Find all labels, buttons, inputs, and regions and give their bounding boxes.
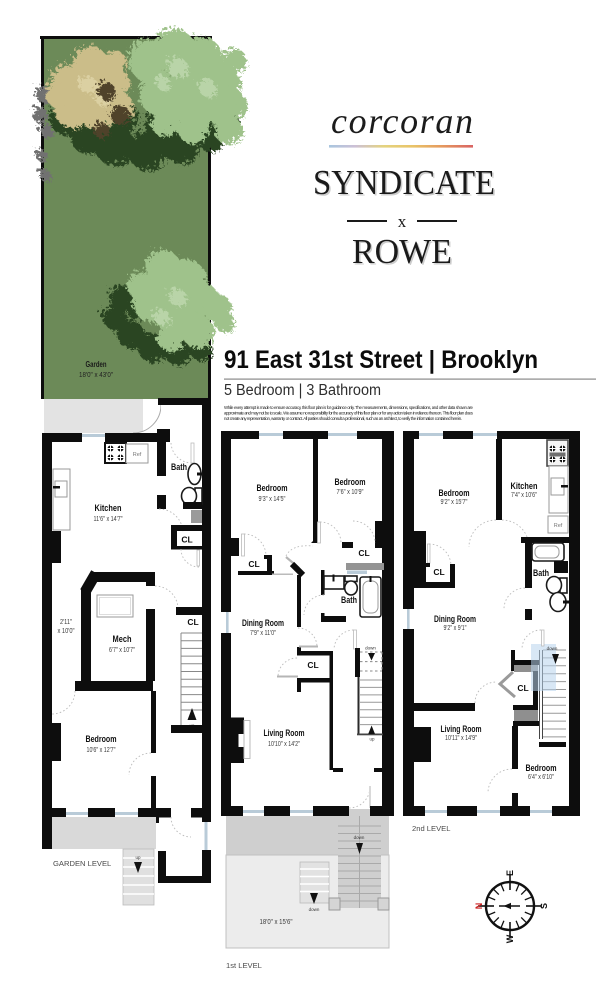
- svg-text:up: up: [135, 855, 141, 860]
- svg-text:6'4" x 6'10": 6'4" x 6'10": [528, 772, 554, 781]
- svg-text:5 Bedroom | 3 Bathroom: 5 Bedroom | 3 Bathroom: [224, 382, 381, 399]
- svg-text:18'0" x 15'6": 18'0" x 15'6": [260, 917, 293, 926]
- svg-text:SYNDICATE: SYNDICATE: [313, 163, 495, 202]
- svg-text:GARDEN LEVEL: GARDEN LEVEL: [53, 859, 111, 868]
- svg-text:E: E: [505, 870, 515, 876]
- svg-text:ROWE: ROWE: [352, 232, 452, 271]
- svg-text:2nd LEVEL: 2nd LEVEL: [412, 824, 450, 833]
- svg-text:W: W: [505, 934, 515, 943]
- svg-text:x: x: [398, 212, 407, 231]
- svg-text:11'6" x 14'7": 11'6" x 14'7": [94, 514, 123, 523]
- svg-text:7'6" x 10'9": 7'6" x 10'9": [337, 487, 364, 496]
- svg-text:91 East 31st Street | Brooklyn: 91 East 31st Street | Brooklyn: [224, 346, 538, 374]
- svg-text:Bedroom: Bedroom: [335, 477, 366, 487]
- svg-text:Bedroom: Bedroom: [86, 734, 117, 744]
- svg-text:CL: CL: [248, 559, 259, 569]
- svg-text:Mech: Mech: [113, 634, 132, 644]
- svg-text:CL: CL: [307, 660, 318, 670]
- svg-text:not create any representation,: not create any representation, warranty …: [224, 416, 462, 421]
- svg-text:CL: CL: [433, 567, 444, 577]
- svg-text:down: down: [547, 646, 558, 651]
- svg-text:x 10'0": x 10'0": [58, 626, 75, 635]
- svg-text:up: up: [369, 737, 375, 742]
- svg-text:Ref: Ref: [133, 452, 142, 458]
- svg-text:9'2" x 9'1": 9'2" x 9'1": [444, 623, 467, 632]
- svg-text:Bath: Bath: [341, 595, 357, 605]
- svg-text:9'3" x 14'5": 9'3" x 14'5": [259, 494, 286, 503]
- svg-text:corcoran: corcoran: [331, 101, 473, 141]
- svg-text:S: S: [539, 903, 549, 909]
- svg-text:While every attempt is made to: While every attempt is made to ensure ac…: [224, 405, 474, 410]
- svg-text:9'2" x 15'7": 9'2" x 15'7": [441, 497, 468, 506]
- svg-text:Living Room: Living Room: [264, 728, 305, 738]
- svg-text:approximate and may not be to: approximate and may not be to scale. We …: [224, 411, 474, 416]
- svg-text:Bath: Bath: [171, 462, 187, 472]
- svg-text:down: down: [365, 646, 376, 651]
- svg-text:Ref: Ref: [554, 523, 563, 529]
- svg-text:10'10" x 14'2": 10'10" x 14'2": [268, 739, 300, 748]
- svg-text:CL: CL: [181, 535, 192, 545]
- svg-text:CL: CL: [187, 617, 198, 627]
- svg-text:Bath: Bath: [533, 568, 549, 578]
- svg-text:10'6" x 12'7": 10'6" x 12'7": [87, 745, 116, 754]
- svg-text:down: down: [354, 835, 365, 840]
- svg-text:Dining Room: Dining Room: [242, 618, 284, 628]
- svg-text:6'7" x 10'7": 6'7" x 10'7": [109, 645, 135, 654]
- svg-text:7'4" x 10'6": 7'4" x 10'6": [511, 490, 537, 499]
- svg-text:CL: CL: [358, 548, 369, 558]
- svg-text:down: down: [309, 907, 320, 912]
- svg-text:Bedroom: Bedroom: [257, 483, 288, 493]
- svg-text:10'11" x 14'9": 10'11" x 14'9": [445, 733, 477, 742]
- svg-text:2'11": 2'11": [60, 617, 72, 626]
- svg-text:18'0" x 43'0": 18'0" x 43'0": [79, 372, 113, 379]
- svg-text:7'9" x 11'0": 7'9" x 11'0": [250, 628, 276, 637]
- svg-text:Kitchen: Kitchen: [95, 503, 122, 513]
- svg-text:CL: CL: [517, 683, 528, 693]
- svg-text:N: N: [474, 903, 484, 910]
- svg-text:1st LEVEL: 1st LEVEL: [226, 961, 262, 970]
- svg-text:Garden: Garden: [86, 359, 107, 369]
